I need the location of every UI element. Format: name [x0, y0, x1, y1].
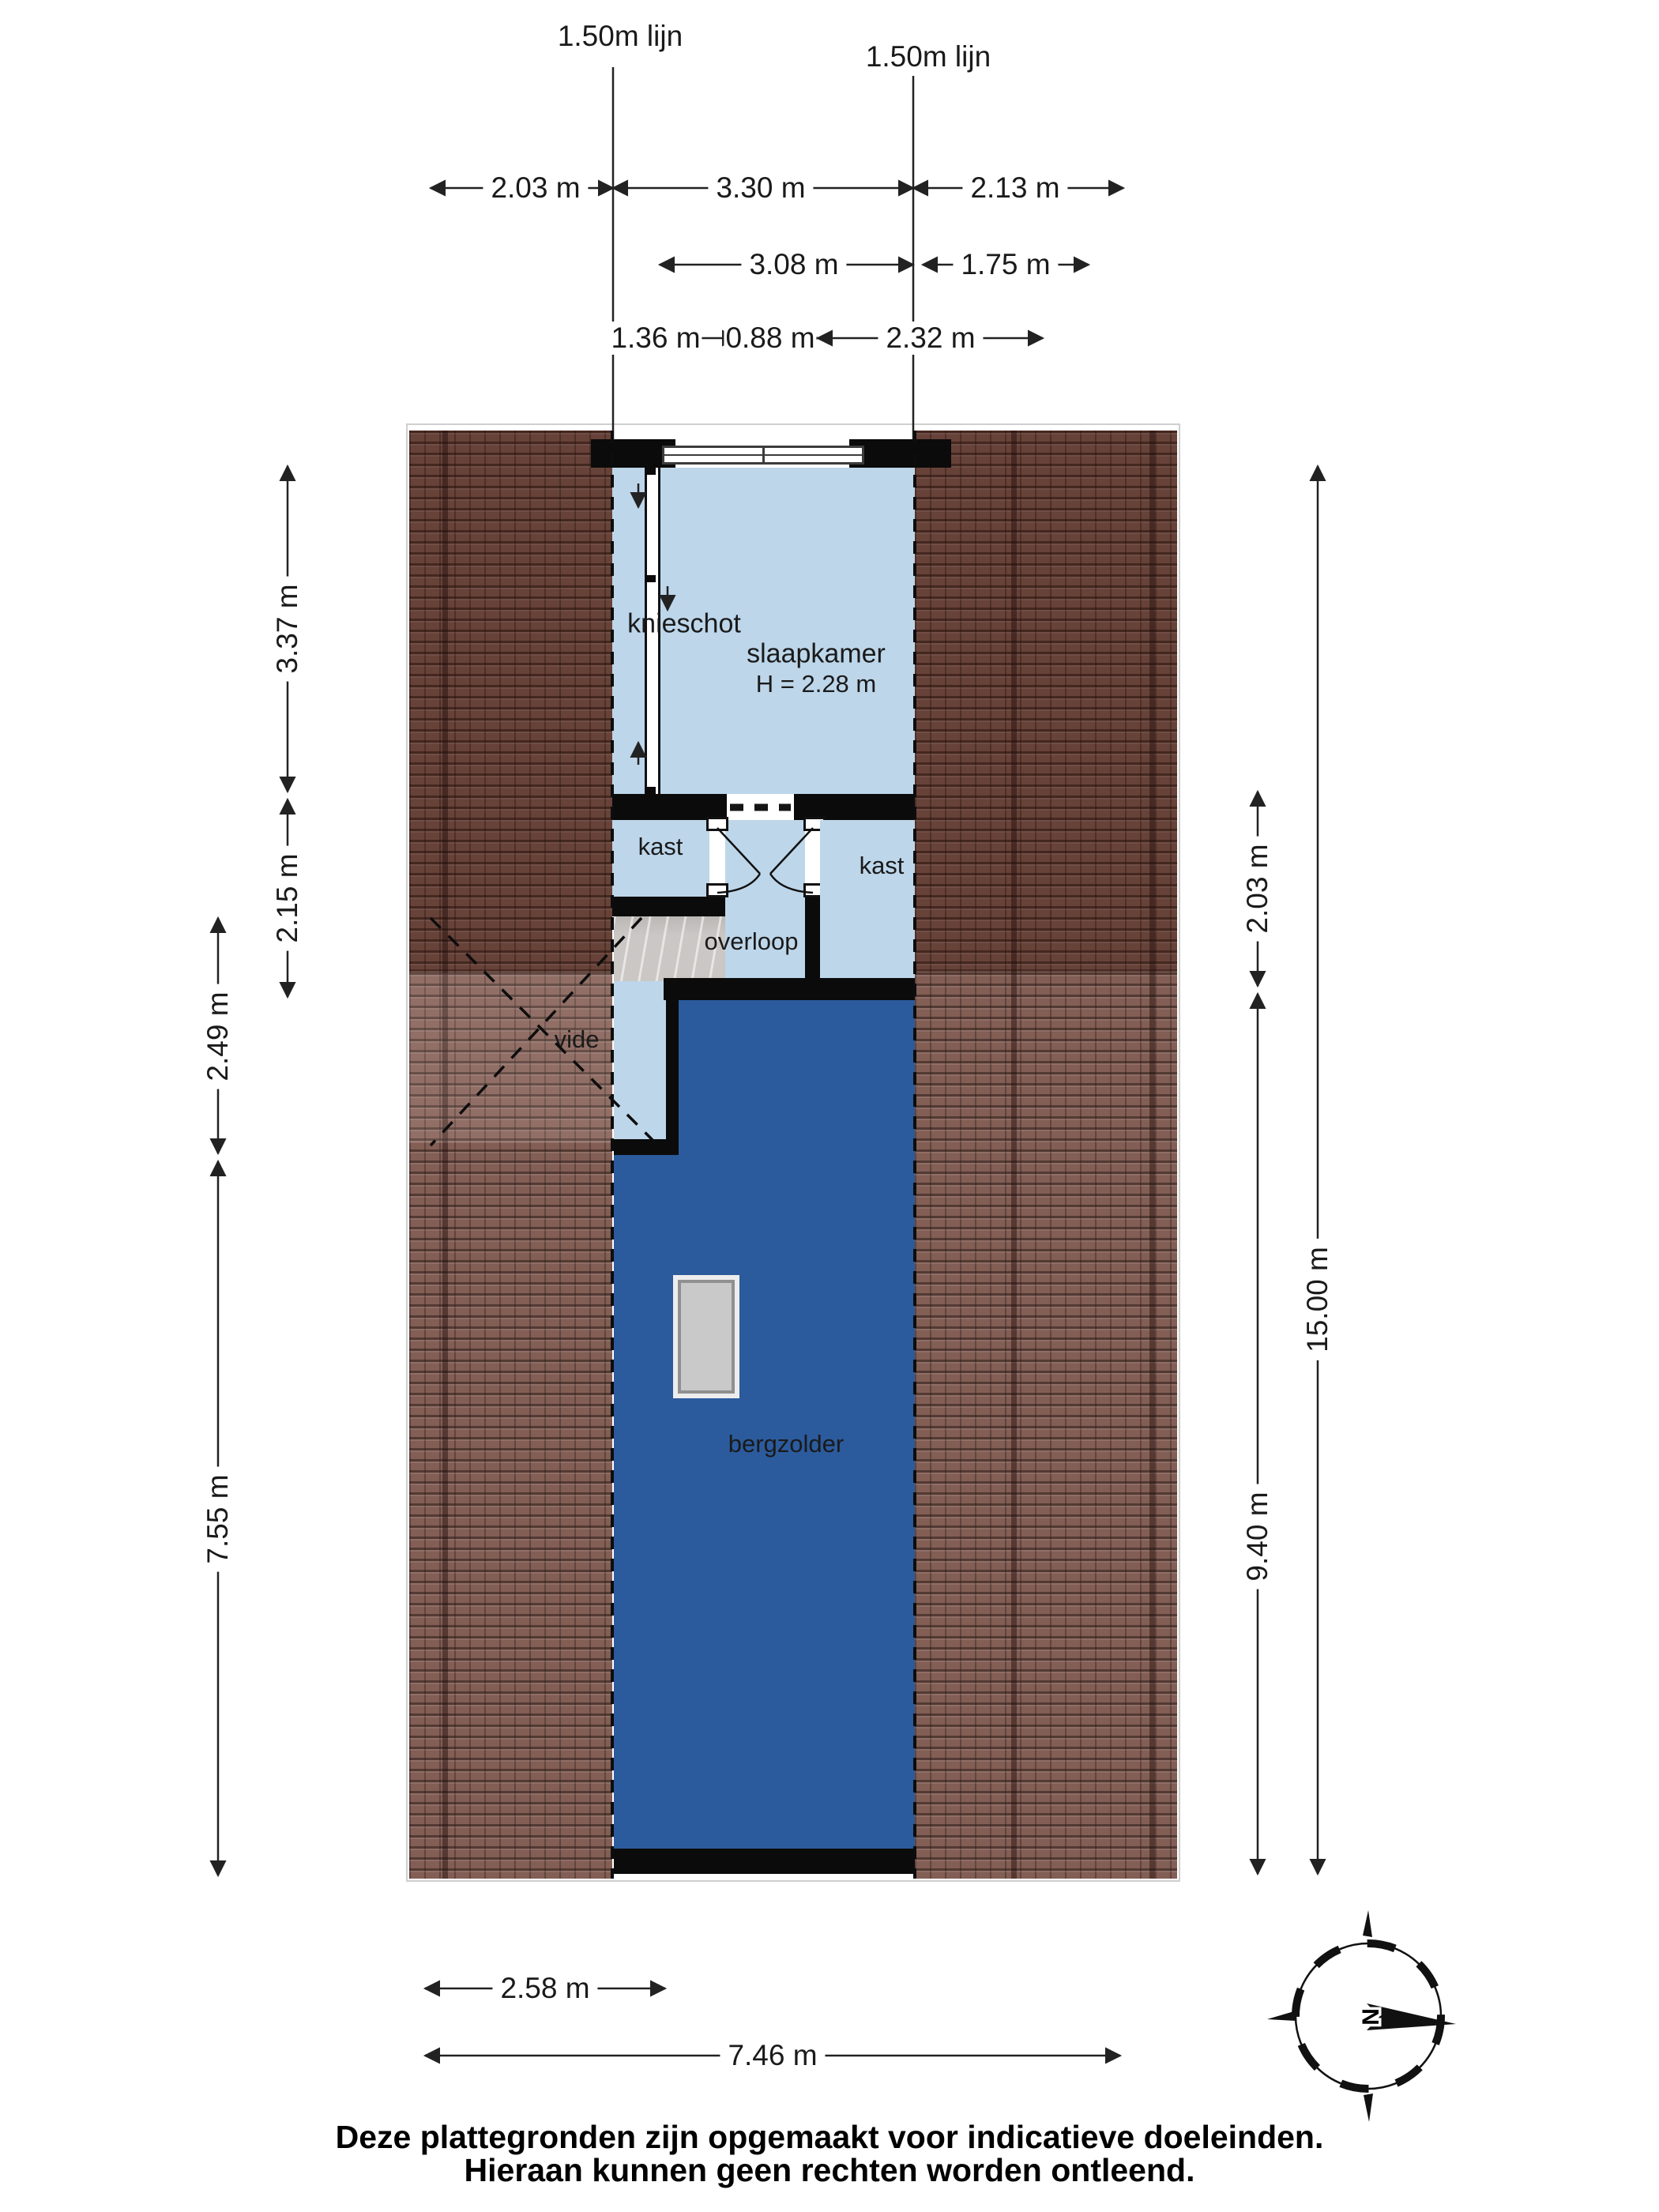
label-bergzolder: bergzolder [728, 1430, 844, 1458]
dim-left-249: 2.49 m [201, 984, 235, 1089]
label-overloop: overloop [705, 927, 799, 956]
window-glazing-mullion [762, 448, 765, 462]
roof-right-ridge-1 [1011, 431, 1017, 1879]
wall-bergzolder-step [614, 1139, 679, 1155]
compass-spike-top [1363, 1910, 1372, 1937]
roof-right-ridge-2 [1149, 431, 1155, 1879]
label-slaapkamer: slaapkamer [747, 639, 886, 670]
window-glazing [662, 446, 864, 465]
dim-top-136: 1.36 m [609, 322, 702, 355]
dim-bottom-258: 2.58 m [492, 1972, 597, 2005]
wall-bottom [614, 1849, 915, 1874]
dim-lines-right [1258, 466, 1318, 1874]
floorplan-page: 1.50m lijn 1.50m lijn [0, 0, 1659, 2212]
roof-right [915, 431, 1177, 1879]
roof-left-break-line [409, 969, 612, 972]
door-left-jamb-top [706, 817, 728, 831]
dim-top-213: 2.13 m [962, 171, 1067, 205]
label-knieschot: knieschot [627, 609, 741, 640]
dim-top-175: 1.75 m [953, 248, 1058, 281]
knieschot-tick-mid [645, 575, 656, 582]
dim-top-088: 0.88 m [724, 322, 816, 355]
knieschot-tick-top [645, 468, 656, 475]
room-overloop [725, 820, 805, 981]
roof-right-lower-shade [915, 971, 1177, 1879]
dim-top-203: 2.03 m [483, 171, 588, 205]
dim-right-203: 2.03 m [1241, 836, 1274, 941]
wall-bergzolder-top [664, 978, 915, 1000]
roof-right-break-line [915, 969, 1177, 972]
dim-top-308: 3.08 m [741, 248, 846, 281]
opening-dashed [727, 794, 794, 820]
label-kast-right: kast [860, 852, 905, 880]
wall-corridor-right-lower [805, 888, 820, 981]
knieschot-tick-bottom [645, 787, 656, 794]
compass-ring-segments [1296, 1943, 1441, 2089]
dim-right-940: 9.40 m [1241, 1484, 1274, 1589]
compass-north-letter: N [1357, 2008, 1383, 2026]
compass-spike-bottom [1364, 2093, 1373, 2122]
label-vide: vide [555, 1025, 600, 1054]
dim-top-232: 2.32 m [878, 322, 983, 355]
room-bergzolder-left-part [614, 1155, 679, 1849]
dim-left-337: 3.37 m [271, 576, 304, 681]
compass: N [1267, 1910, 1456, 2122]
wall-kast-left-bottom [612, 897, 725, 916]
dim-top-330: 3.30 m [708, 171, 813, 205]
wall-top-right [849, 439, 951, 468]
roof-right-upper-shade [915, 431, 1177, 971]
dim-left-755: 7.55 m [201, 1466, 235, 1571]
label-slaapkamer-height: H = 2.28 m [756, 670, 877, 698]
roof-left-upper-shade [409, 431, 612, 971]
door-left-jamb-bottom [706, 883, 728, 897]
compass-circle [1296, 1943, 1441, 2089]
dim-bottom-746: 7.46 m [720, 2039, 825, 2072]
disclaimer-line-1: Deze plattegronden zijn opgemaakt voor i… [0, 2119, 1659, 2156]
roof-left-ridge [442, 431, 448, 1879]
label-kast-left: kast [638, 833, 683, 861]
dim-right-1500: 15.00 m [1301, 1239, 1334, 1360]
disclaimer-line-2: Hieraan kunnen geen rechten worden ontle… [0, 2152, 1659, 2189]
line-150-label-left: 1.50m lijn [558, 20, 683, 53]
compass-spike-left [1267, 2011, 1296, 2021]
room-kast-right [820, 820, 915, 978]
opening-dashes [730, 803, 791, 811]
roof-left-vide-tint [409, 973, 612, 1143]
dim-left-215: 2.15 m [271, 845, 304, 950]
compass-north-arrow [1367, 2003, 1456, 2030]
room-bergzolder-main [679, 1000, 915, 1849]
overloop-strip [614, 981, 666, 1139]
roof-left [409, 431, 612, 1879]
skylight [678, 1280, 735, 1394]
line-150-label-right: 1.50m lijn [866, 40, 991, 73]
wall-bergzolder-left [666, 1000, 679, 1139]
